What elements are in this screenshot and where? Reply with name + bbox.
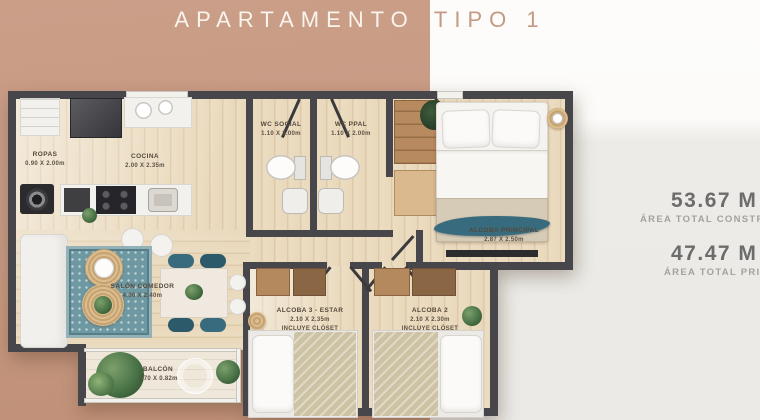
wall-wc-middle xyxy=(310,91,317,233)
balcony-railing-bottom xyxy=(84,398,241,403)
laundry-shelves xyxy=(20,98,60,136)
label-salon-comedor: SALÓN COMEDOR 4.00 X 2.40m xyxy=(100,282,185,301)
sofa xyxy=(20,234,68,348)
label-alcoba-3: ALCOBA 3 - ESTAR 2.10 X 2.35m INCLUYE CL… xyxy=(270,306,350,334)
wall-master-entry xyxy=(416,230,423,270)
apartment-floor-plan: ROPAS 0.90 X 2.00m COCINA 2.00 X 2.35m W… xyxy=(0,0,760,420)
dining-chair-4 xyxy=(200,318,226,332)
counter-pot xyxy=(135,102,152,119)
wall-wc-bottom xyxy=(246,230,393,237)
floor-plan-page: APARTAMENTO TIPO 1 53.67 M ÁREA TOTAL CO… xyxy=(0,0,760,420)
dining-chair-white-1 xyxy=(229,274,246,291)
master-duvet xyxy=(436,150,548,202)
wall-balcony-left xyxy=(78,344,86,406)
label-wc-social: WC SOCIAL 1.10 X 2.00m xyxy=(254,120,308,139)
kitchen-counter xyxy=(124,97,192,128)
bedroom2-closet-b xyxy=(412,268,456,296)
dining-chair-white-2 xyxy=(229,298,246,315)
bedroom3-duvet xyxy=(294,332,356,416)
bedroom2-pillow xyxy=(440,335,482,413)
master-pillow-left xyxy=(441,109,490,149)
dining-chair-3 xyxy=(168,318,194,332)
kitchen-sink xyxy=(148,188,178,212)
bar-stool-2 xyxy=(150,234,173,257)
dining-centerpiece xyxy=(185,284,203,300)
bathroom-sink-social xyxy=(282,188,308,214)
balcony-sliding-door xyxy=(84,348,241,352)
label-wc-ppal: WC PPAL 1.10 X 2.00m xyxy=(322,120,380,139)
master-pillow-right xyxy=(491,109,540,149)
wall-wc-left xyxy=(246,91,253,237)
balcony-plant-small xyxy=(216,360,240,384)
cooktop xyxy=(96,186,136,214)
hall-bench xyxy=(394,170,438,216)
kitchen-plant xyxy=(82,208,97,223)
dining-chair-2 xyxy=(200,254,226,268)
coffee-table-tray xyxy=(94,258,114,278)
bedroom3-side-table xyxy=(248,312,266,330)
bedroom3-closet-a xyxy=(256,268,290,296)
washing-machine xyxy=(20,184,54,214)
bedroom3-closet-b xyxy=(293,268,326,296)
bathroom-sink-ppal xyxy=(318,188,344,214)
dining-chair-1 xyxy=(168,254,194,268)
label-balcon: BALCÓN 2.70 X 0.82m xyxy=(126,365,190,384)
wall-left xyxy=(8,91,16,352)
toilet-ppal xyxy=(330,155,360,180)
wall-right-bedrooms xyxy=(490,262,498,416)
balcony-plant-large-2 xyxy=(88,372,114,396)
label-alcoba-principal: ALCOBA PRINCIPAL 2.87 X 2.50m xyxy=(452,226,556,245)
counter-pot-2 xyxy=(158,100,173,115)
wall-wc-right xyxy=(386,91,393,177)
toilet-social xyxy=(266,155,296,180)
nightstand-lamp xyxy=(553,114,562,123)
entry-threshold xyxy=(437,91,463,99)
label-alcoba-2: ALCOBA 2 2.10 X 2.30m INCLUYE CLÓSET xyxy=(392,306,468,334)
label-ropas: ROPAS 0.90 X 2.00m xyxy=(14,150,76,169)
label-cocina: COCINA 2.00 X 2.35m xyxy=(108,152,182,171)
tv-console xyxy=(446,250,538,257)
bedroom2-closet-a xyxy=(374,268,410,296)
refrigerator xyxy=(70,98,122,138)
bedroom3-pillow xyxy=(252,335,294,413)
bedroom2-duvet xyxy=(374,332,438,416)
